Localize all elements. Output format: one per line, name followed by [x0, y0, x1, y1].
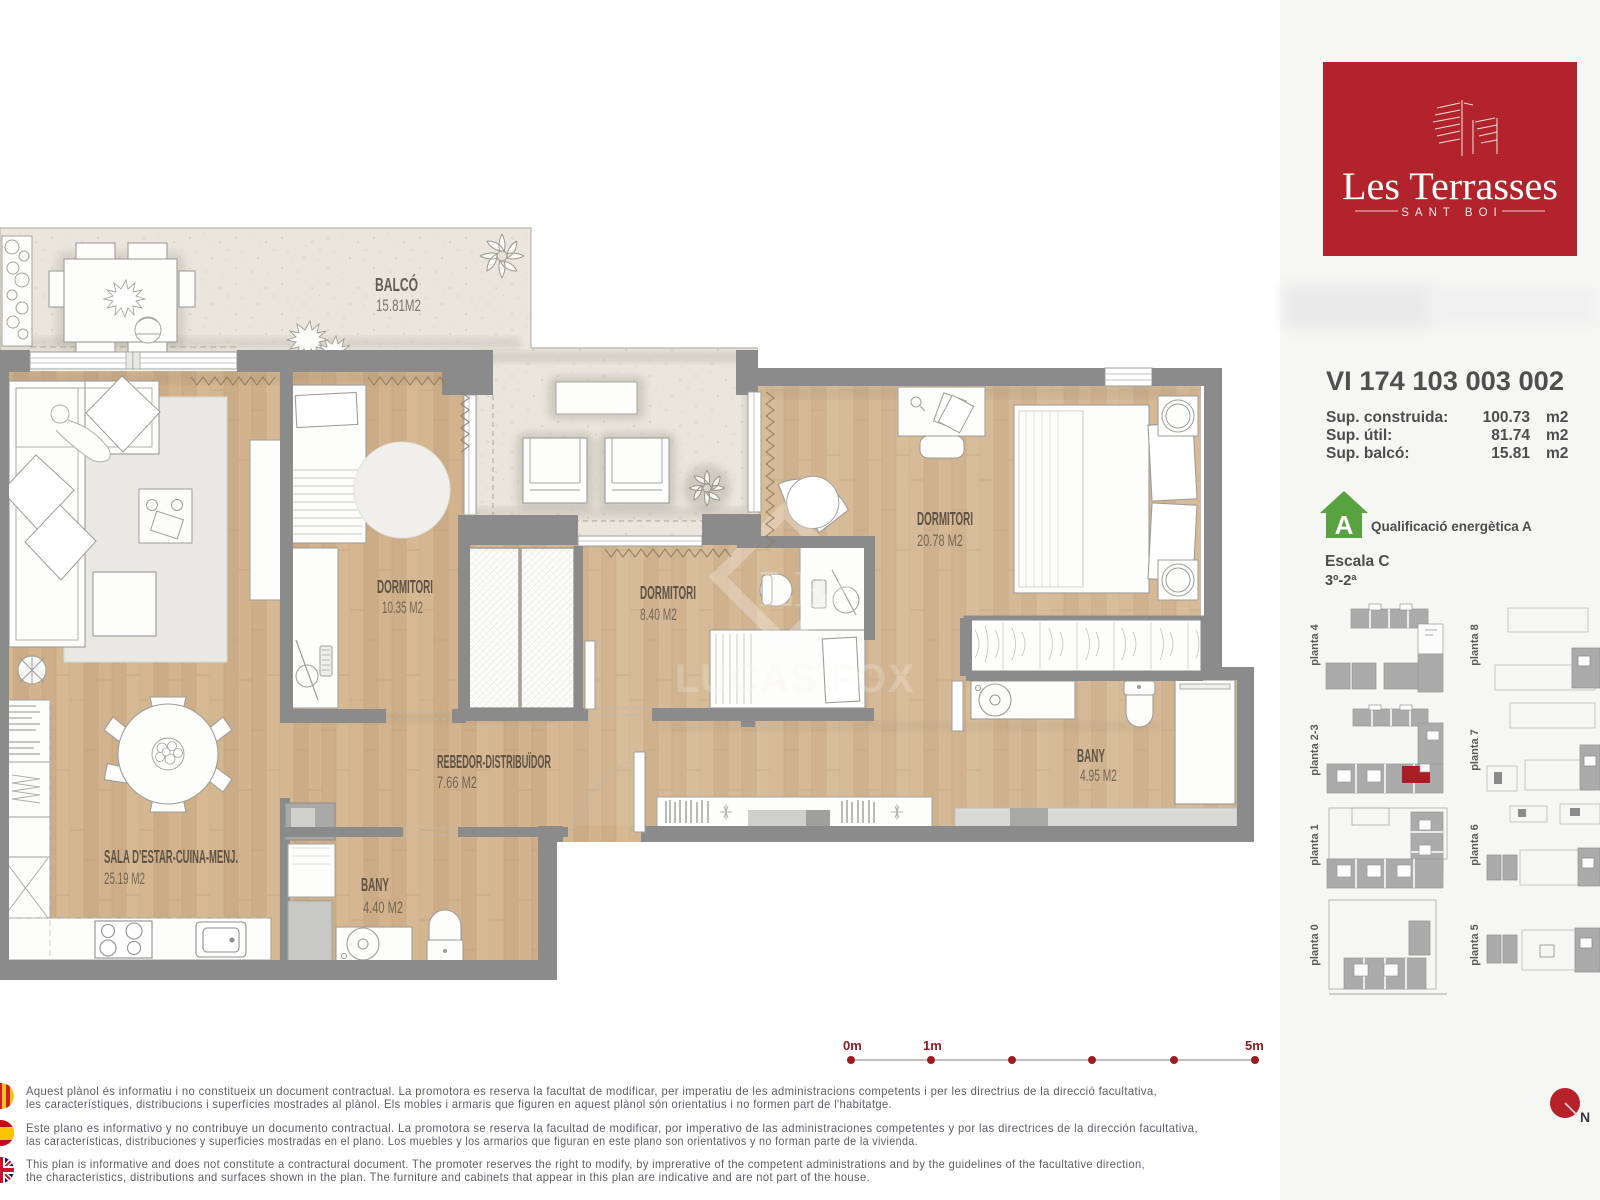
svg-text:0m: 0m: [843, 1038, 862, 1053]
svg-text:les característiques, distribu: les característiques, distribucions i su…: [26, 1097, 892, 1111]
svg-text:5m: 5m: [1245, 1038, 1264, 1053]
svg-text:7.66 M2: 7.66 M2: [437, 773, 477, 792]
svg-text:20.78 M2: 20.78 M2: [917, 531, 963, 550]
svg-text:planta 0: planta 0: [1309, 924, 1321, 966]
svg-text:m2: m2: [1546, 427, 1568, 444]
svg-text:SANT BOI: SANT BOI: [1401, 207, 1502, 219]
svg-text:Qualificació energètica A: Qualificació energètica A: [1371, 519, 1532, 534]
svg-text:planta 4: planta 4: [1309, 623, 1321, 665]
svg-text:planta 2-3: planta 2-3: [1309, 724, 1321, 775]
svg-text:LF: LF: [760, 561, 826, 618]
svg-text:N: N: [1580, 1109, 1590, 1125]
svg-text:planta 6: planta 6: [1469, 824, 1481, 866]
svg-text:81.74: 81.74: [1491, 427, 1530, 444]
svg-text:15.81M2: 15.81M2: [376, 296, 421, 315]
svg-text:LUCAS FOX: LUCAS FOX: [675, 657, 915, 701]
svg-text:4.40 M2: 4.40 M2: [363, 898, 403, 917]
svg-text:Sup. construida:: Sup. construida:: [1326, 409, 1448, 426]
svg-text:Sup. útil:: Sup. útil:: [1326, 427, 1392, 444]
svg-text:8.40 M2: 8.40 M2: [640, 605, 677, 624]
svg-text:planta 7: planta 7: [1469, 729, 1481, 771]
svg-text:m2: m2: [1546, 409, 1568, 426]
svg-text:the characteristics, distribut: the characteristics, distributions and s…: [26, 1170, 870, 1184]
svg-text:planta 8: planta 8: [1469, 624, 1481, 666]
svg-text:15.81: 15.81: [1491, 445, 1530, 462]
svg-text:BANY: BANY: [361, 875, 389, 895]
svg-text:VI 174 103 003 002: VI 174 103 003 002: [1326, 366, 1564, 396]
svg-text:25.19 M2: 25.19 M2: [104, 869, 145, 888]
svg-text:DORMITORI: DORMITORI: [377, 577, 433, 597]
svg-text:Este plano es informativo y no: Este plano es informativo y no contribuy…: [26, 1121, 1198, 1135]
svg-text:Les Terrasses: Les Terrasses: [1342, 165, 1558, 208]
svg-text:100.73: 100.73: [1483, 409, 1531, 426]
svg-text:las características, distribuc: las características, distribuciones y su…: [26, 1134, 918, 1148]
svg-text:3º-2ª: 3º-2ª: [1325, 573, 1357, 589]
svg-text:Aquest plànol és informatiu i: Aquest plànol és informatiu i no constit…: [26, 1084, 1157, 1098]
svg-text:planta 5: planta 5: [1469, 924, 1481, 966]
svg-text:DORMITORI: DORMITORI: [640, 583, 696, 603]
svg-text:A: A: [1335, 510, 1354, 540]
svg-text:BALCÓ: BALCÓ: [375, 274, 418, 295]
svg-text:This plan is informative and d: This plan is informative and does not co…: [26, 1157, 1145, 1171]
svg-text:Sup. balcó:: Sup. balcó:: [1326, 445, 1410, 462]
svg-text:DORMITORI: DORMITORI: [917, 509, 973, 529]
svg-text:4.95 M2: 4.95 M2: [1080, 766, 1117, 785]
svg-text:Escala C: Escala C: [1325, 553, 1390, 570]
svg-text:m2: m2: [1546, 445, 1568, 462]
svg-text:BANY: BANY: [1077, 746, 1105, 766]
svg-text:SALA D'ESTAR-CUINA-MENJ.: SALA D'ESTAR-CUINA-MENJ.: [104, 847, 238, 867]
svg-text:1m: 1m: [923, 1038, 942, 1053]
svg-text:10.35 M2: 10.35 M2: [382, 598, 423, 617]
svg-text:REBEDOR-DISTRIBUÏDOR: REBEDOR-DISTRIBUÏDOR: [437, 752, 551, 772]
svg-text:planta 1: planta 1: [1309, 824, 1321, 866]
